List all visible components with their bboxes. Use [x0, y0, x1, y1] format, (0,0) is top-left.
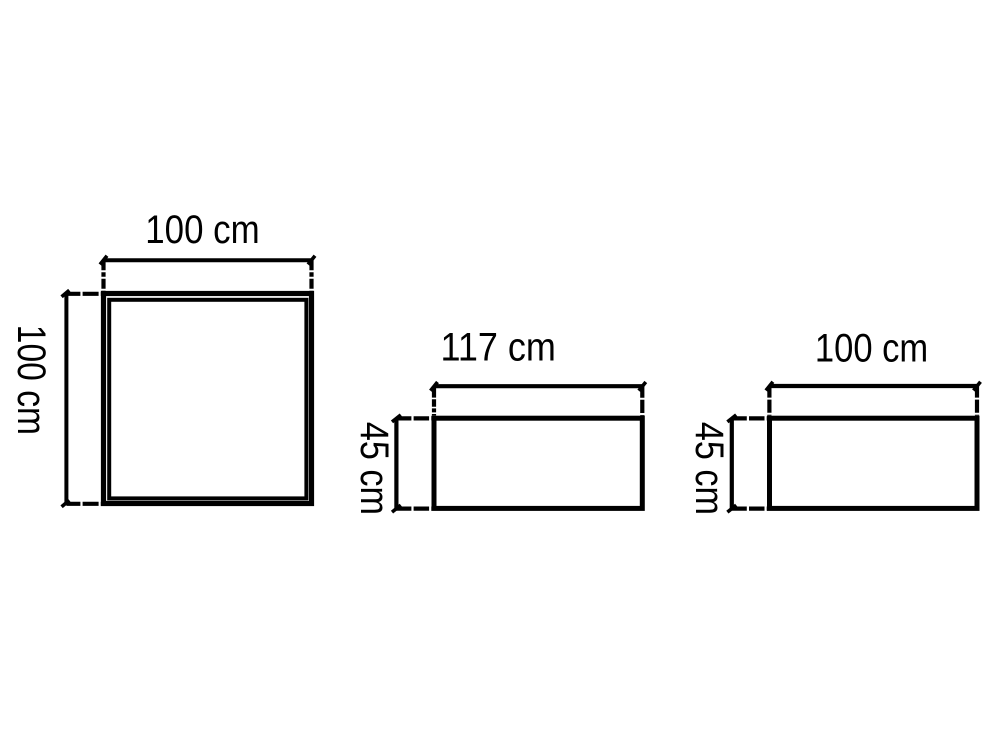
- svg-text:45 cm: 45 cm: [352, 422, 396, 515]
- svg-text:100 cm: 100 cm: [815, 326, 928, 370]
- svg-text:100 cm: 100 cm: [9, 325, 53, 435]
- svg-text:117 cm: 117 cm: [441, 326, 556, 370]
- svg-text:45 cm: 45 cm: [687, 422, 731, 515]
- svg-text:100 cm: 100 cm: [145, 208, 259, 252]
